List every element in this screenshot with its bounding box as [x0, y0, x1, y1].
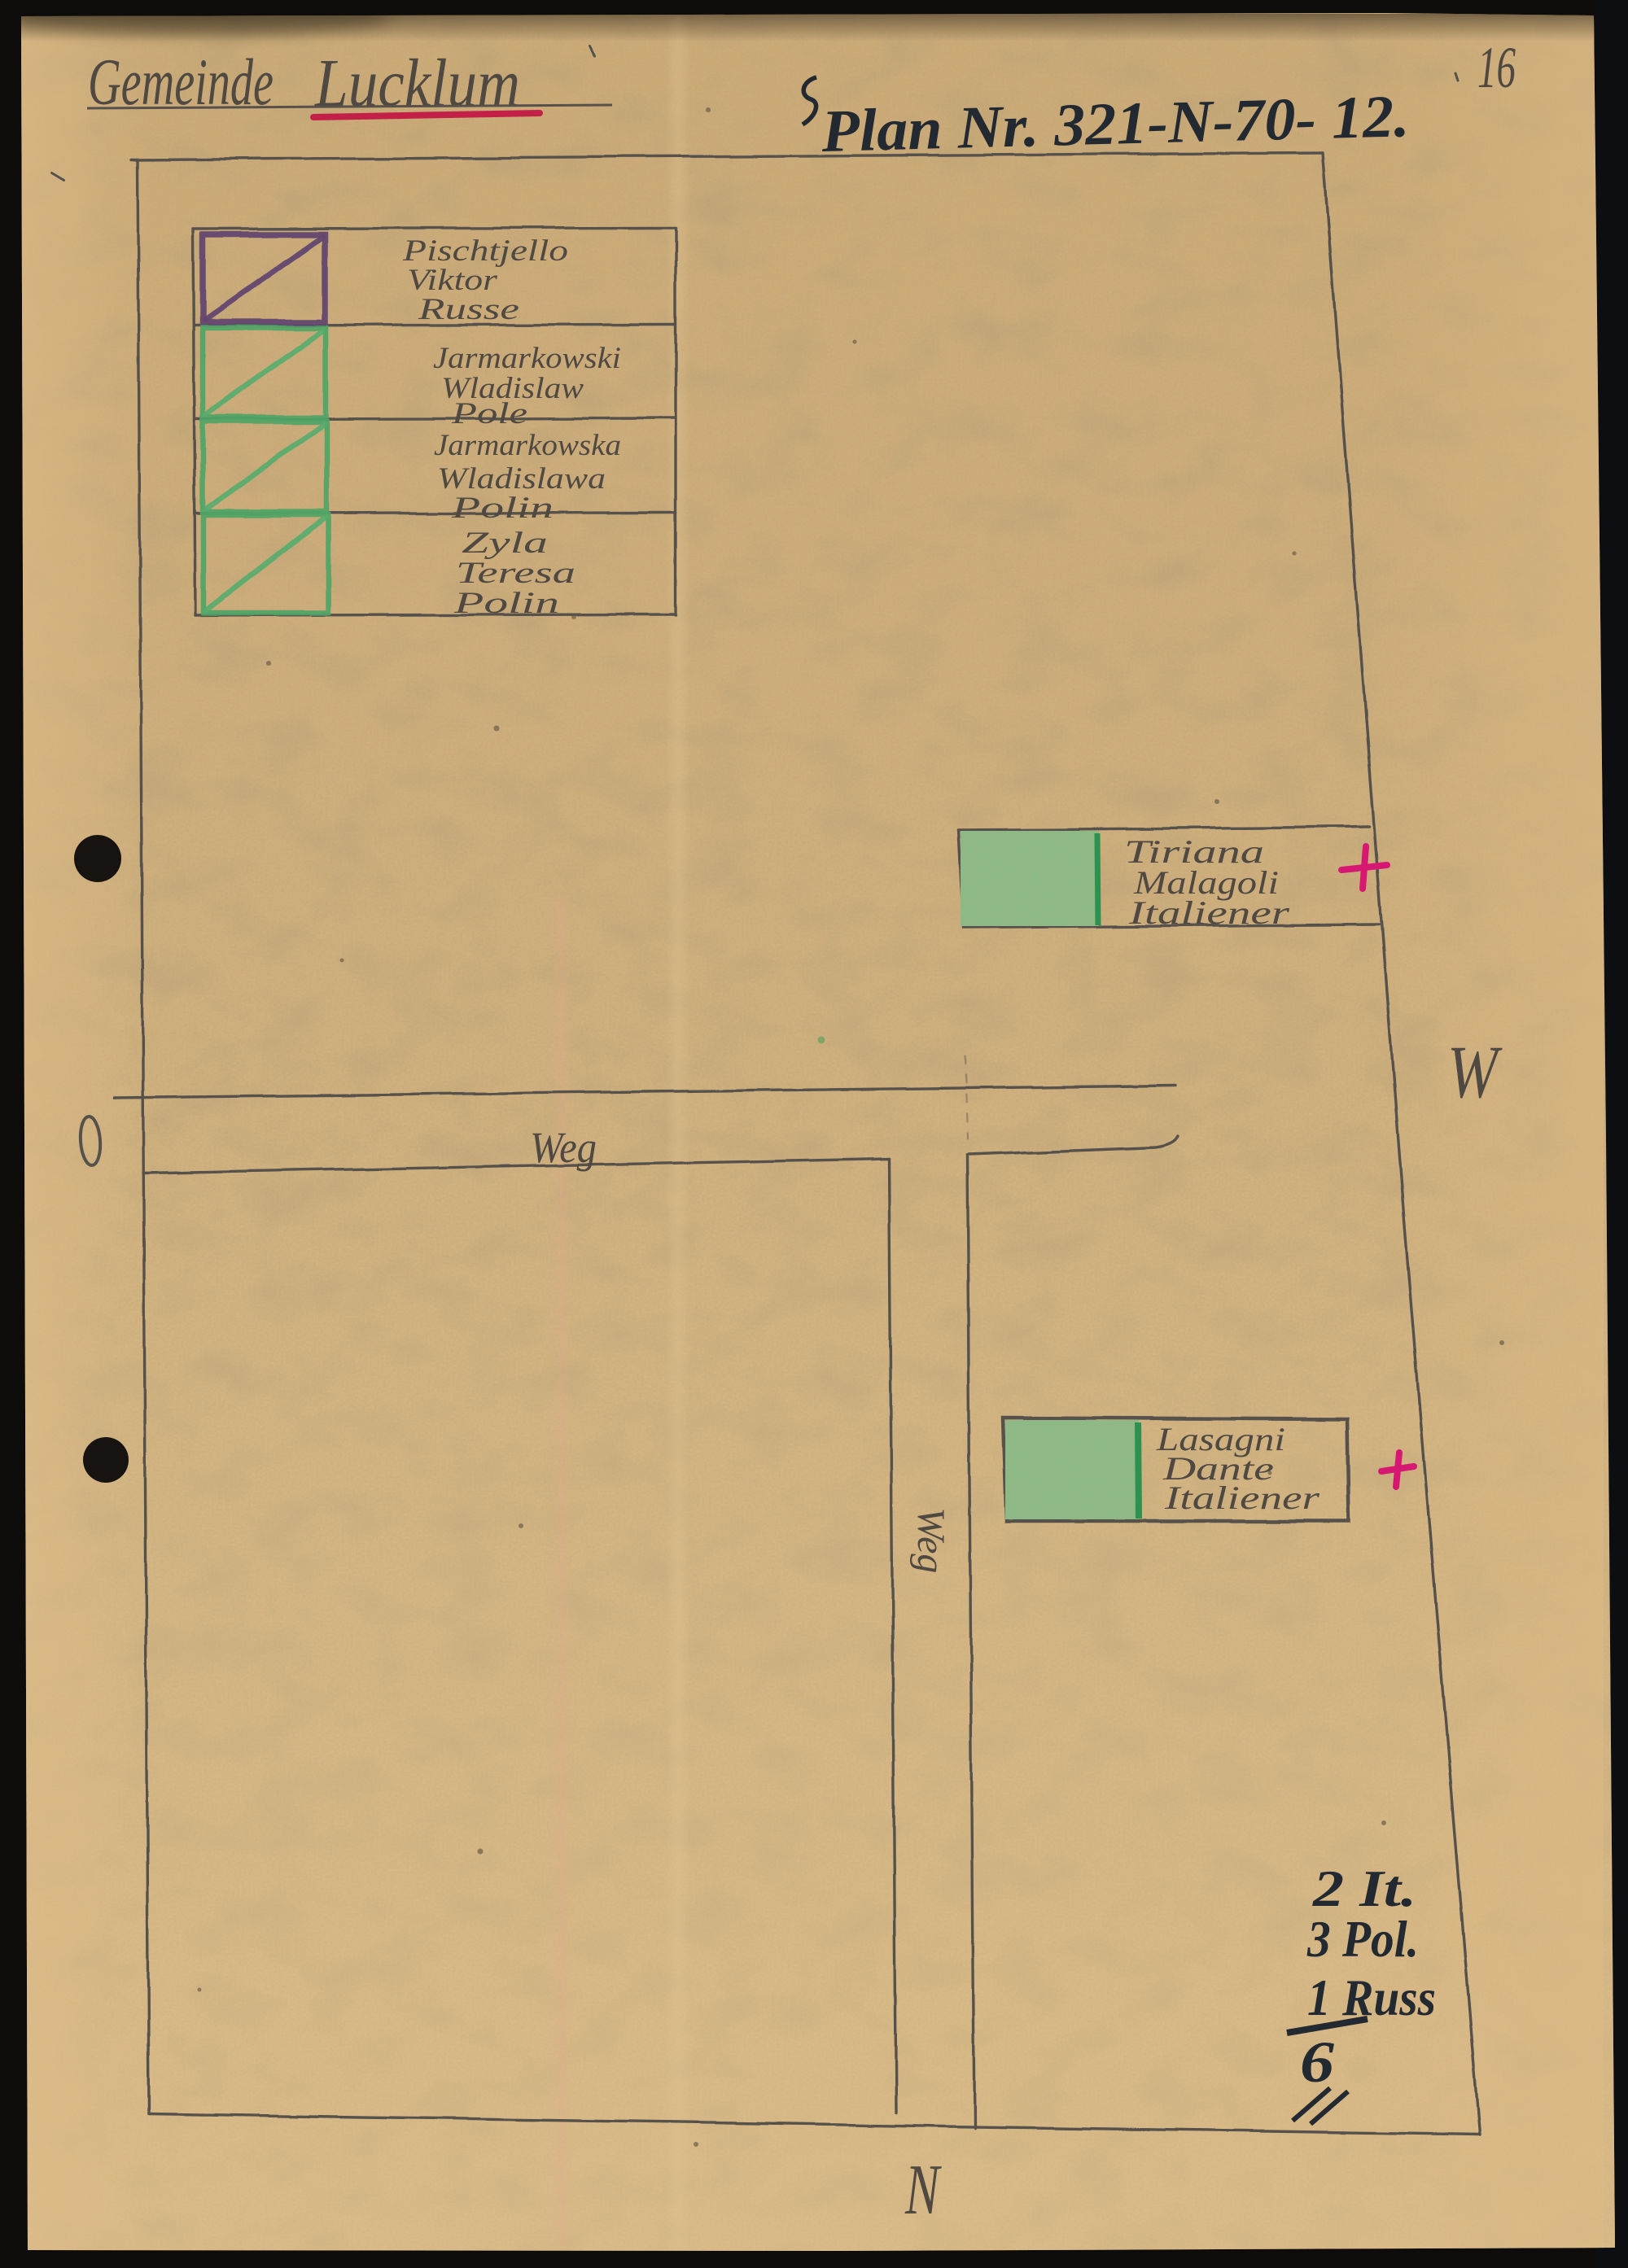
- svg-text:Viktor: Viktor: [407, 264, 498, 297]
- svg-text:Lucklum: Lucklum: [314, 46, 520, 121]
- svg-text:Polin: Polin: [450, 492, 554, 525]
- svg-text:Weg: Weg: [909, 1508, 952, 1574]
- svg-text:Italiener: Italiener: [1164, 1479, 1320, 1516]
- svg-text:3 Pol.: 3 Pol.: [1306, 1910, 1419, 1968]
- svg-text:Zyla: Zyla: [462, 527, 548, 560]
- svg-text:6: 6: [1300, 2030, 1334, 2095]
- svg-text:Italiener: Italiener: [1128, 894, 1290, 931]
- svg-text:Weg: Weg: [530, 1123, 597, 1172]
- svg-text:Teresa: Teresa: [456, 557, 575, 590]
- svg-text:Pischtjello: Pischtjello: [402, 234, 568, 268]
- svg-text:16: 16: [1477, 35, 1516, 100]
- svg-text:2 It.: 2 It.: [1312, 1859, 1416, 1917]
- svg-text:Polin: Polin: [453, 587, 559, 620]
- svg-text:Russe: Russe: [418, 293, 519, 326]
- svg-text:Jarmarkowska: Jarmarkowska: [434, 429, 621, 462]
- svg-text:Wladislawa: Wladislawa: [437, 462, 606, 496]
- svg-text:Jarmarkowski: Jarmarkowski: [433, 342, 621, 375]
- svg-text:1 Russ: 1 Russ: [1307, 1969, 1436, 2026]
- svg-text:Pole: Pole: [451, 397, 527, 430]
- svg-text:N: N: [904, 2151, 942, 2230]
- svg-text:W: W: [1447, 1030, 1503, 1113]
